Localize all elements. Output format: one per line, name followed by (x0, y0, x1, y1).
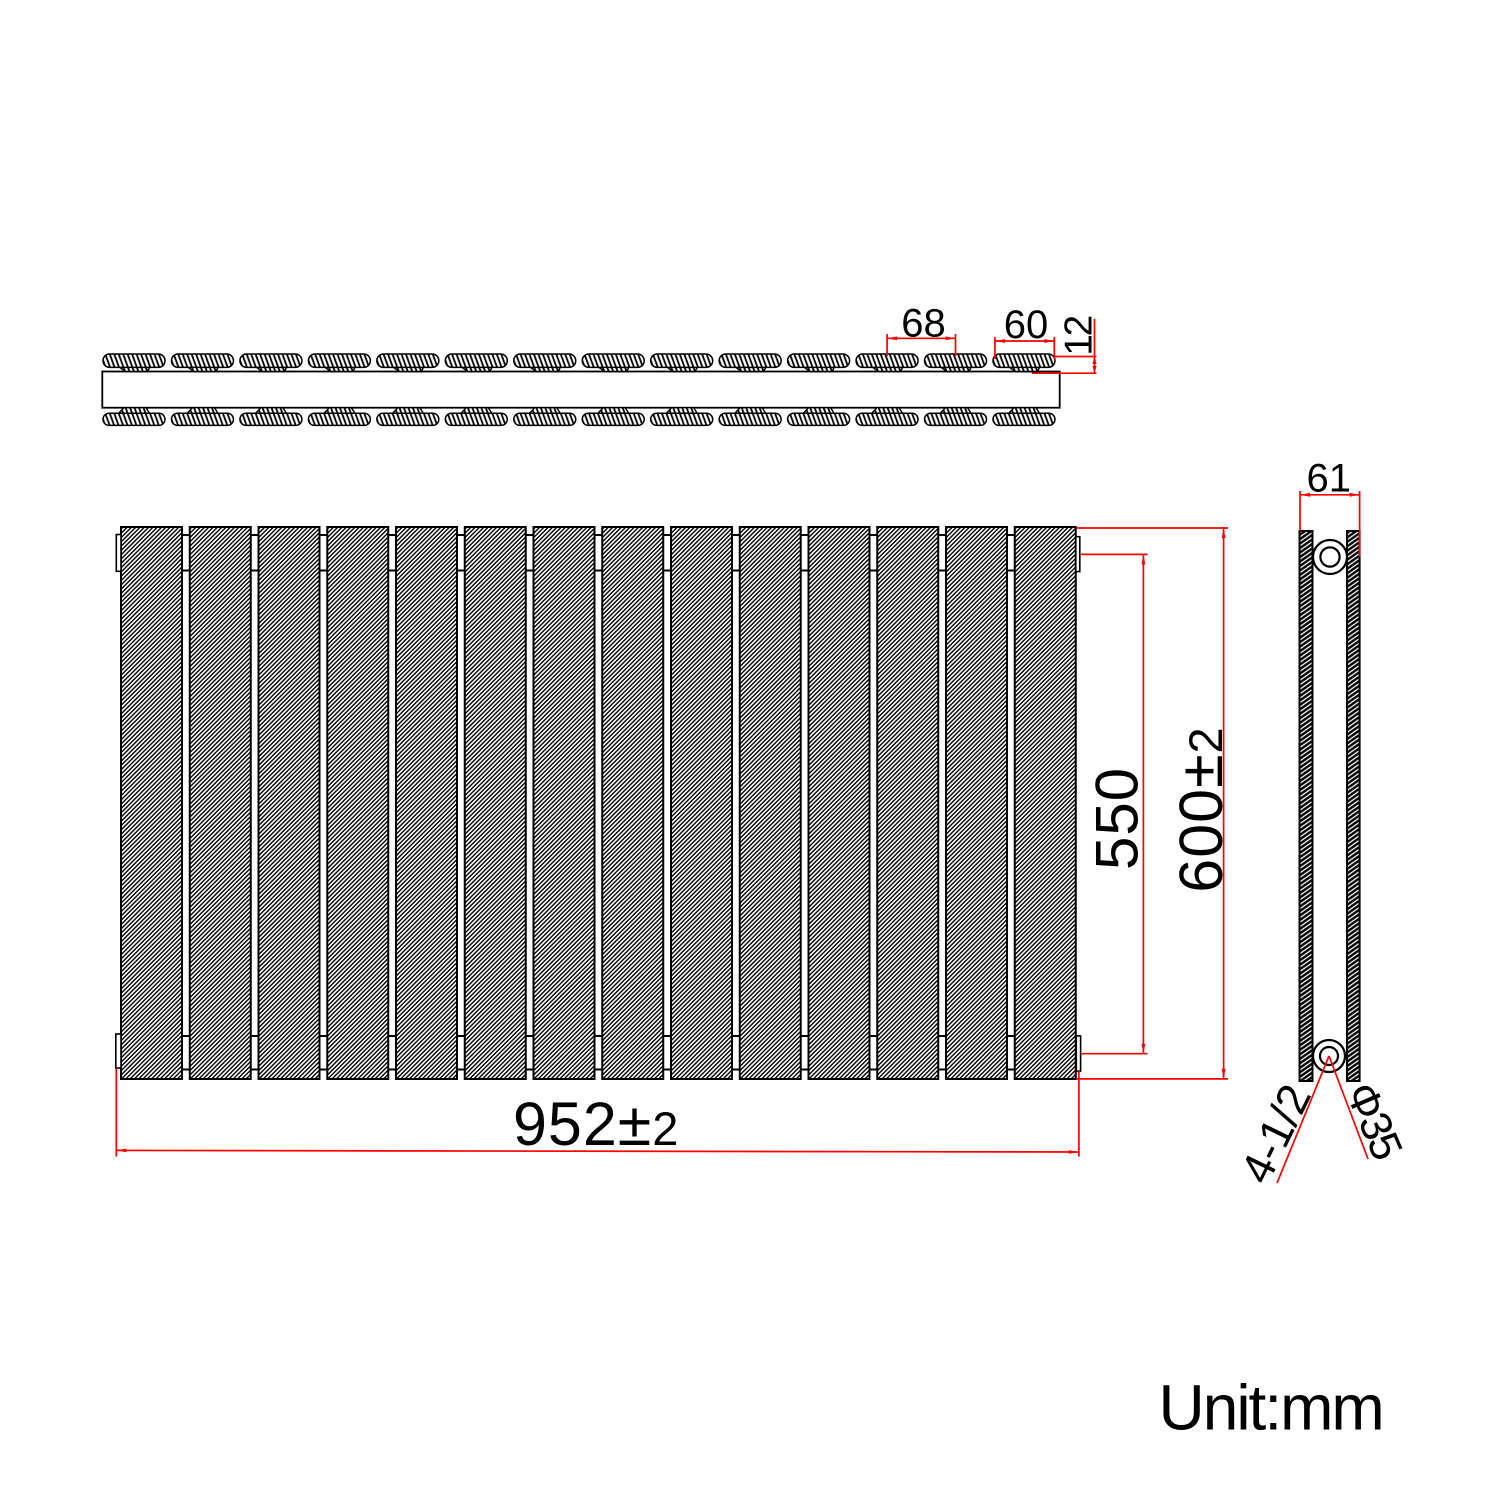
svg-text:61: 61 (1307, 457, 1352, 501)
svg-text:60: 60 (1004, 303, 1049, 347)
svg-text:Φ35: Φ35 (1336, 1075, 1412, 1166)
svg-text:4-1/2: 4-1/2 (1230, 1076, 1321, 1191)
svg-text:12: 12 (1058, 317, 1101, 356)
svg-text:952±2: 952±2 (513, 1090, 679, 1158)
svg-text:68: 68 (901, 302, 946, 346)
svg-text:600±2: 600±2 (1167, 726, 1235, 892)
svg-text:Unit:mm: Unit:mm (1159, 1372, 1383, 1444)
svg-text:550: 550 (1084, 767, 1151, 870)
